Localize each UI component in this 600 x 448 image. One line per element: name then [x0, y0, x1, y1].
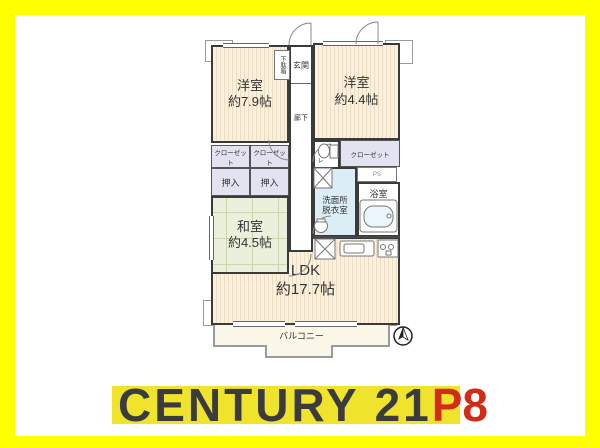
toilet-label: トイレ: [316, 145, 322, 163]
closet-left-2: クローゼット: [250, 145, 289, 168]
balcony: バルコニー: [213, 325, 390, 347]
closet-right: クローゼット: [340, 140, 400, 167]
screenshot-frame: LDK 約17.7帖 バルコニー 洋室 約7.9帖 洋室 約4.4: [0, 0, 600, 448]
oshiire-1: 押入: [211, 168, 250, 196]
floor-plan: LDK 約17.7帖 バルコニー 洋室 約7.9帖 洋室 約4.4: [183, 20, 423, 365]
window-ldk-left: [233, 321, 285, 327]
compass-icon: [394, 327, 412, 345]
oshiire-2: 押入: [250, 168, 289, 196]
window-washitsu: [209, 216, 214, 260]
hallway-label: 廊下: [291, 113, 311, 123]
bathroom-label: 浴室: [359, 187, 398, 200]
pipe-space: PS: [357, 167, 397, 182]
window-west1: [223, 43, 269, 48]
bathroom: 浴室: [357, 182, 400, 237]
shoe-cabinet: 下駄箱: [274, 50, 290, 80]
washroom-label: 洗面所 脱衣室: [315, 195, 355, 215]
window-ldk-right: [295, 321, 357, 327]
window-west2: [323, 41, 383, 46]
balcony-step: [265, 345, 333, 358]
room-japanese-4-5: 和室 約4.5帖: [211, 196, 289, 274]
shoe-cabinet-label: 下駄箱: [279, 56, 285, 74]
brand-text: CENTURY 21: [118, 382, 432, 428]
room-japanese-4-5-label: 和室 約4.5帖: [213, 198, 287, 272]
franchise-text: P8: [432, 382, 488, 428]
hallway: 玄関 廊下: [289, 45, 313, 252]
closet-left-1: クローゼット: [211, 145, 250, 168]
white-canvas: LDK 約17.7帖 バルコニー 洋室 約7.9帖 洋室 約4.4: [15, 15, 585, 436]
room-western-4-4: 洋室 約4.4帖: [313, 43, 400, 140]
washroom: 洗面所 脱衣室: [313, 167, 357, 237]
room-western-4-4-label: 洋室 約4.4帖: [315, 45, 398, 138]
entrance-genkan: 玄関: [291, 47, 311, 84]
balcony-label: バルコニー: [215, 329, 388, 342]
century21-logo: CENTURY 21P8: [112, 386, 490, 424]
